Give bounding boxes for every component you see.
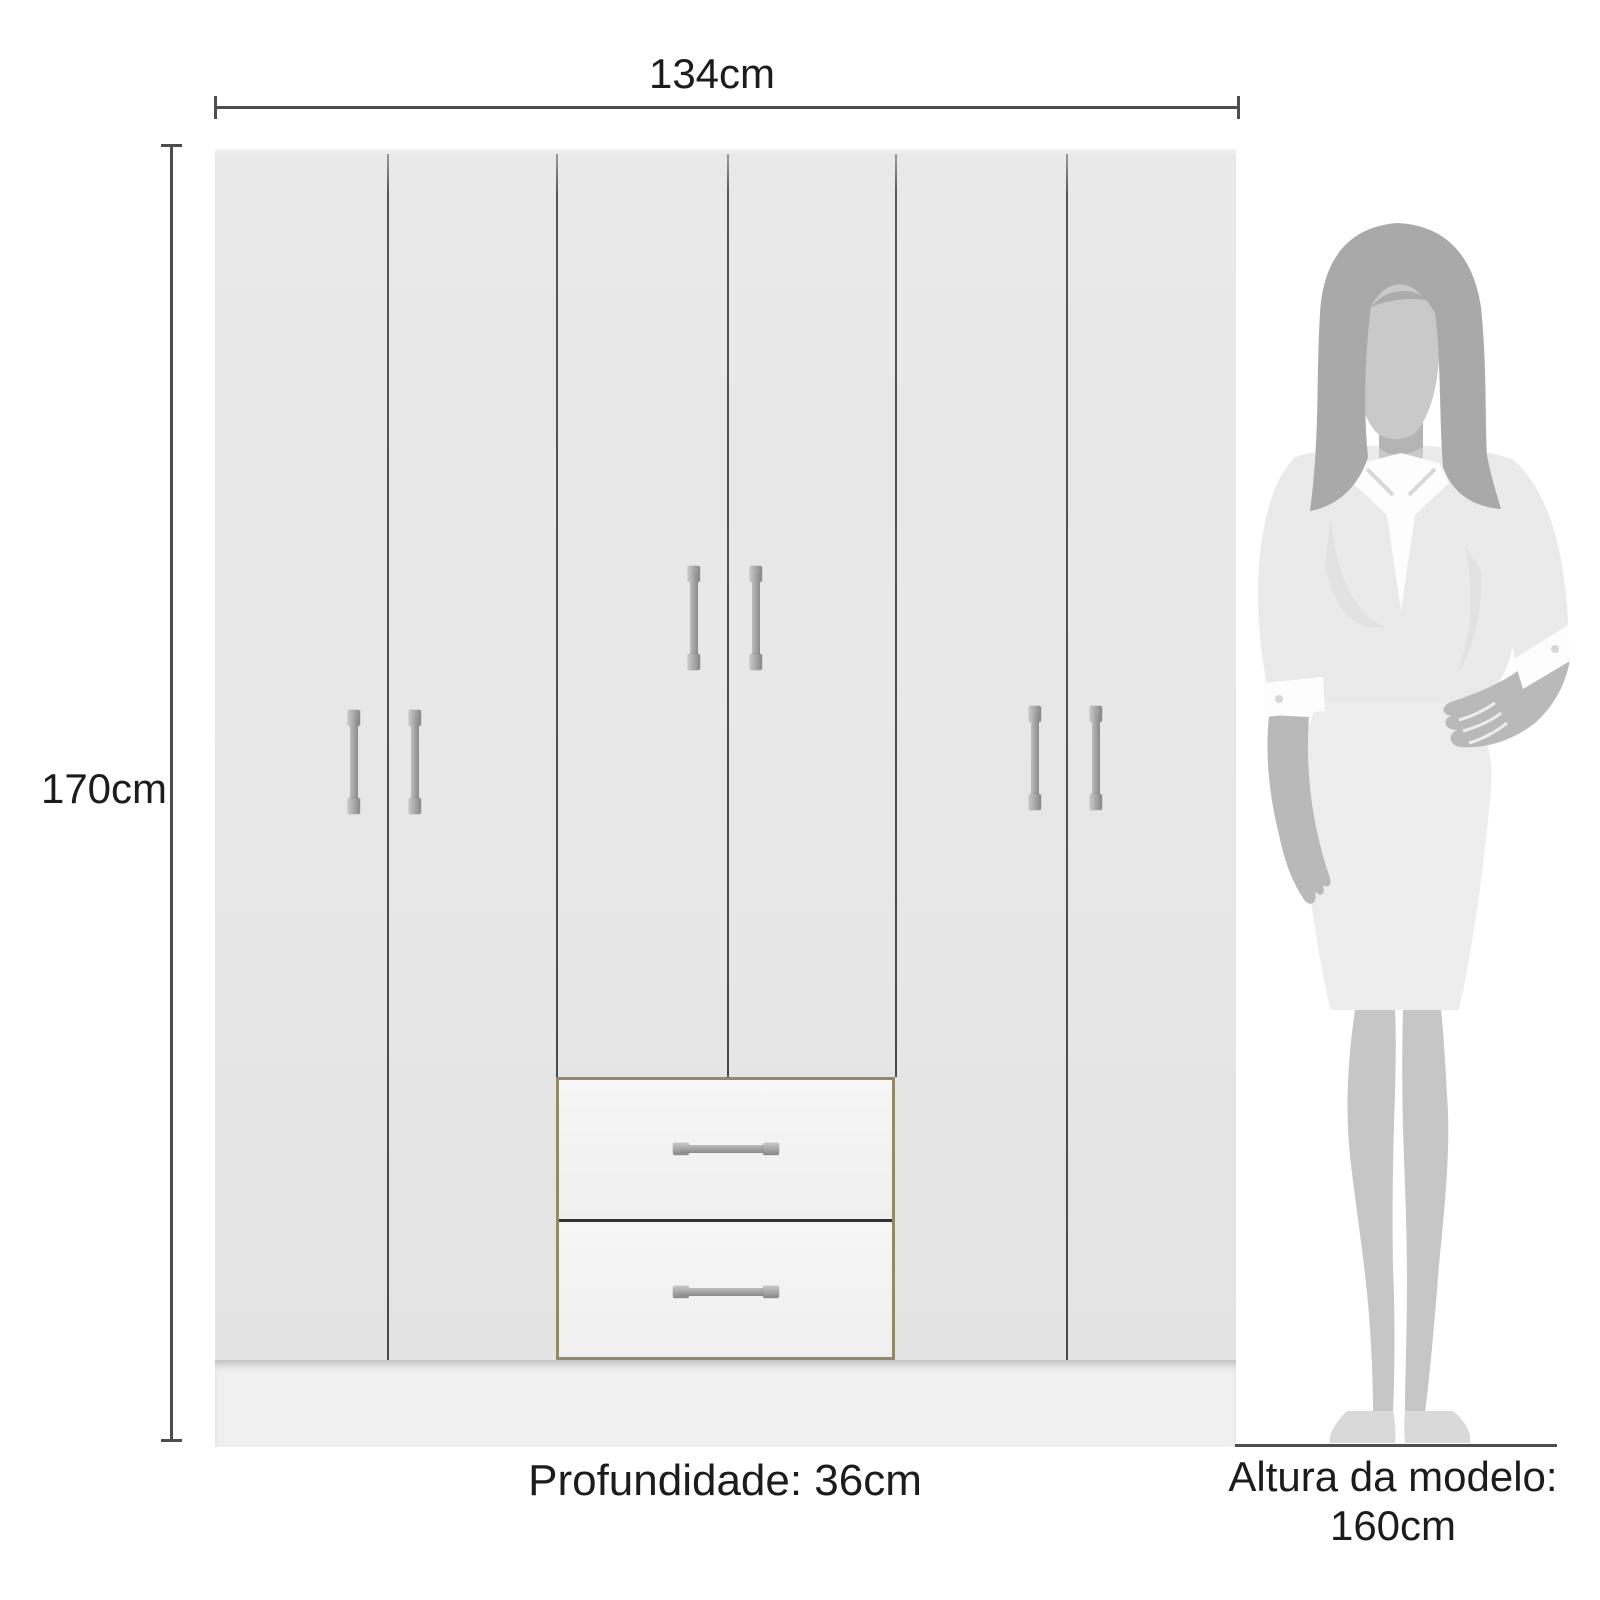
door-handle-1	[348, 710, 360, 814]
door-handle-3	[688, 566, 700, 670]
door-gap-3	[727, 154, 729, 1077]
handle-bar	[752, 573, 760, 663]
cuff-left	[1263, 677, 1325, 717]
wardrobe-door-3	[558, 149, 727, 928]
cuff-button-right	[1551, 645, 1559, 653]
cuff-button-left	[1275, 695, 1283, 703]
depth-label: Profundidade: 36cm	[425, 1456, 1025, 1506]
handle-bar	[1092, 713, 1100, 803]
door-gap-4	[895, 154, 897, 1077]
door-handle-4	[750, 566, 762, 670]
model-silhouette	[1235, 215, 1570, 1448]
shoe-right	[1404, 1411, 1470, 1443]
handle-cap	[1090, 794, 1102, 810]
height-dimension-tick-top	[161, 144, 182, 147]
model-ground-line	[1235, 1444, 1557, 1447]
handle-cap	[763, 1286, 779, 1298]
width-dimension-tick-left	[214, 96, 217, 119]
dimension-diagram: 134cm 170cm	[0, 0, 1600, 1600]
shoe-left	[1330, 1411, 1396, 1443]
leg-left	[1348, 1010, 1396, 1413]
width-dimension-line	[214, 106, 1240, 109]
handle-cap	[348, 798, 360, 814]
handle-cap	[750, 654, 762, 670]
handle-bar	[350, 717, 358, 807]
model-height-label-line1: Altura da modelo:	[1228, 1453, 1557, 1500]
wardrobe-plinth	[215, 1360, 1236, 1447]
wardrobe-door-4	[729, 149, 895, 928]
width-dimension-tick-right	[1237, 96, 1240, 119]
handle-bar	[411, 717, 419, 807]
jacket-sleeve-left	[1258, 457, 1321, 687]
wardrobe-door-1	[215, 149, 387, 1360]
height-dimension-line	[170, 145, 173, 1442]
model-height-label: Altura da modelo: 160cm	[1200, 1452, 1586, 1550]
door-gap-5	[1066, 154, 1068, 1360]
handle-bar	[690, 573, 698, 663]
door-handle-5	[1029, 706, 1041, 810]
handle-cap	[1029, 794, 1041, 810]
door-gap-2	[556, 154, 558, 1077]
handle-bar	[680, 1288, 772, 1296]
drawer-handle-2	[673, 1286, 779, 1298]
height-dimension-label: 170cm	[14, 765, 194, 813]
door-handle-2	[409, 710, 421, 814]
drawer-unit	[556, 1077, 895, 1360]
width-dimension-label: 134cm	[512, 50, 912, 98]
door-gap-1	[387, 154, 389, 1360]
handle-cap	[688, 654, 700, 670]
model-height-label-line2: 160cm	[1330, 1502, 1456, 1549]
drawer-handle-1	[673, 1143, 779, 1155]
leg-right	[1402, 1010, 1448, 1413]
skirt	[1300, 703, 1492, 1010]
door-handle-6	[1090, 706, 1102, 810]
height-dimension-tick-bottom	[161, 1439, 182, 1442]
handle-bar	[1031, 713, 1039, 803]
handle-bar	[680, 1145, 772, 1153]
handle-cap	[763, 1143, 779, 1155]
wardrobe	[215, 149, 1236, 1447]
handle-cap	[409, 798, 421, 814]
